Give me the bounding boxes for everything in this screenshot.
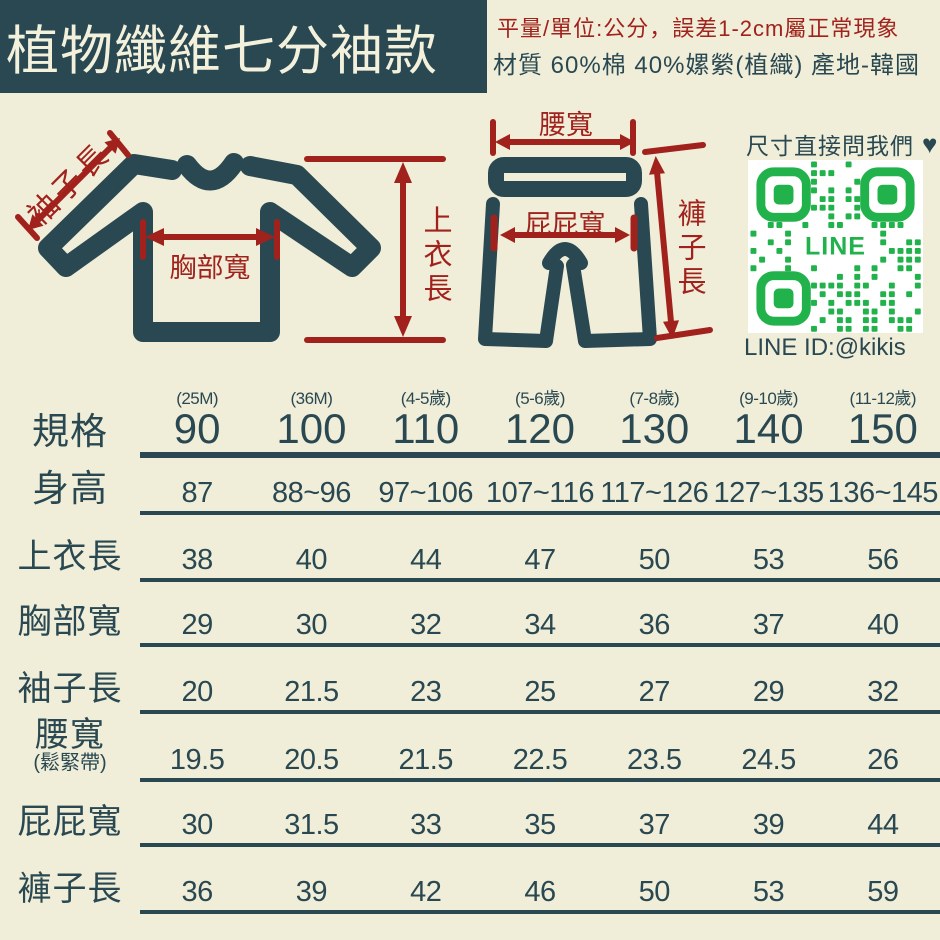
measurement-value: 53 [711, 878, 825, 907]
row-values: 2021.52325272932 [140, 647, 940, 714]
qr-finder-bottom-left [761, 276, 806, 321]
measurement-value: 32 [369, 611, 483, 640]
size-table-row: 屁屁寬3031.53335373944 [0, 782, 940, 847]
size-table: 規格 (25M)90(36M)100(4-5歲)110(5-6歲)120(7-8… [0, 388, 940, 914]
ask-us-label: 尺寸直接問我們 [746, 127, 914, 161]
measurement-value: 39 [254, 878, 368, 907]
row-label: 胸部寬 [18, 605, 123, 639]
size-column-header: (9-10歲)140 [711, 389, 825, 449]
measurement-value: 59 [826, 878, 940, 907]
line-id: LINE ID:@kikis [744, 334, 906, 362]
measurement-value: 23.5 [597, 746, 711, 775]
size-column-header: (4-5歲)110 [369, 389, 483, 449]
size-column-header: (36M)100 [254, 389, 368, 449]
row-label-cell: 胸部寬 [0, 582, 140, 647]
size-number: 140 [734, 409, 804, 449]
size-table-row: 袖子長2021.52325272932 [0, 647, 940, 714]
measurement-value: 47 [483, 546, 597, 575]
spec-label: 規格 [32, 413, 108, 450]
row-values: 19.520.521.522.523.524.526 [140, 714, 940, 782]
row-label: 腰寬 [35, 718, 105, 752]
qr-finder-top-right [865, 172, 910, 217]
row-values: 36394246505359 [140, 847, 940, 914]
row-label: 身高 [32, 470, 108, 507]
row-label-cell: 屁屁寬 [0, 782, 140, 847]
measurement-value: 97~106 [369, 479, 483, 508]
measurement-value: 53 [711, 546, 825, 575]
measurement-value: 32 [826, 678, 940, 707]
measurement-value: 46 [483, 878, 597, 907]
size-table-row: 腰寬(鬆緊帶)19.520.521.522.523.524.526 [0, 714, 940, 782]
measurement-value: 21.5 [369, 746, 483, 775]
measurement-value: 21.5 [254, 678, 368, 707]
row-label-cell: 褲子長 [0, 847, 140, 914]
row-values: 38404447505356 [140, 515, 940, 582]
measurement-value: 33 [369, 811, 483, 840]
measurement-value: 35 [483, 811, 597, 840]
size-number: 90 [174, 409, 221, 449]
row-sublabel: (鬆緊帶) [33, 752, 106, 774]
measurement-value: 31.5 [254, 811, 368, 840]
measurement-value: 36 [597, 611, 711, 640]
measurement-value: 26 [826, 746, 940, 775]
measurement-value: 50 [597, 546, 711, 575]
measurement-value: 44 [369, 546, 483, 575]
size-table-row: 上衣長38404447505356 [0, 515, 940, 582]
waist-width-label: 腰寬 [506, 103, 626, 142]
measurement-value: 27 [597, 678, 711, 707]
size-column-header: (5-6歲)120 [483, 389, 597, 449]
measurement-value: 36 [140, 878, 254, 907]
line-qr-code: LINE [748, 160, 923, 333]
measurement-value: 87 [140, 479, 254, 508]
spec-label-cell: 規格 [0, 388, 140, 458]
size-number: 130 [619, 409, 689, 449]
measurement-value: 107~116 [483, 479, 597, 508]
measurement-value: 40 [254, 546, 368, 575]
measurement-value: 42 [369, 878, 483, 907]
measurement-value: 25 [483, 678, 597, 707]
measurement-value: 117~126 [597, 479, 711, 508]
size-number: 110 [392, 409, 459, 449]
measurement-value: 34 [483, 611, 597, 640]
measurement-value: 88~96 [254, 479, 368, 508]
row-values: 8788~9697~106107~116117~126127~135136~14… [140, 458, 940, 515]
size-table-row: 褲子長36394246505359 [0, 847, 940, 914]
row-label-cell: 袖子長 [0, 647, 140, 714]
measurement-value: 20.5 [254, 746, 368, 775]
row-label: 屁屁寬 [18, 805, 123, 839]
shirt-neck [187, 163, 234, 181]
size-chart-infographic: 植物纖維七分袖款 平量/單位:公分，誤差1-2cm屬正常現象 材質 60%棉 4… [0, 0, 940, 940]
heart-icon: ♥ [922, 129, 938, 160]
measurement-value: 40 [826, 611, 940, 640]
size-column-header: (11-12歲)150 [826, 389, 940, 449]
row-label: 褲子長 [18, 872, 123, 906]
size-table-row: 身高8788~9697~106107~116117~126127~135136~… [0, 458, 940, 515]
page-title: 植物纖維七分袖款 [6, 9, 438, 85]
measurement-value: 136~145 [826, 479, 940, 508]
measurement-value: 30 [254, 611, 368, 640]
measurement-value: 29 [140, 611, 254, 640]
measurement-value: 56 [826, 546, 940, 575]
chest-width-label: 胸部寬 [150, 246, 270, 285]
measurement-value: 37 [597, 811, 711, 840]
pants-length-label: 褲子長 [668, 198, 710, 300]
measurement-value: 44 [826, 811, 940, 840]
row-label: 上衣長 [18, 540, 123, 574]
size-number: 150 [848, 409, 918, 449]
hip-width-label: 屁屁寬 [505, 203, 625, 242]
top-length-label: 上衣長 [414, 205, 456, 307]
measurement-value: 37 [711, 611, 825, 640]
size-number: 120 [505, 409, 575, 449]
size-number: 100 [276, 409, 346, 449]
measurement-value: 20 [140, 678, 254, 707]
qr-line-label: LINE [802, 231, 869, 262]
measurement-value: 39 [711, 811, 825, 840]
measurement-value: 19.5 [140, 746, 254, 775]
row-label: 袖子長 [18, 672, 123, 706]
row-values: 3031.53335373944 [140, 782, 940, 847]
title-banner: 植物纖維七分袖款 [0, 0, 487, 93]
contact-heading: 尺寸直接問我們 ♥ [746, 127, 938, 161]
pants-outline [485, 165, 650, 341]
row-label-cell: 身高 [0, 458, 140, 515]
size-table-header-row: 規格 (25M)90(36M)100(4-5歲)110(5-6歲)120(7-8… [0, 388, 940, 458]
measurement-value: 24.5 [711, 746, 825, 775]
row-label-cell: 上衣長 [0, 515, 140, 582]
measurement-value: 29 [711, 678, 825, 707]
measurement-value: 127~135 [711, 479, 825, 508]
measurement-value: 30 [140, 811, 254, 840]
row-values: 29303234363740 [140, 582, 940, 647]
size-column-header: (25M)90 [140, 389, 254, 449]
measurement-value: 50 [597, 878, 711, 907]
material-origin-note: 材質 60%棉 40%嫘縈(植織) 產地-韓國 [493, 45, 920, 80]
size-column-header: (7-8歲)130 [597, 389, 711, 449]
row-label-cell: 腰寬(鬆緊帶) [0, 714, 140, 782]
measurement-value: 23 [369, 678, 483, 707]
shirt-diagram [0, 100, 470, 380]
measurement-value: 22.5 [483, 746, 597, 775]
size-table-header-values: (25M)90(36M)100(4-5歲)110(5-6歲)120(7-8歲)1… [140, 388, 940, 458]
measurement-value: 38 [140, 546, 254, 575]
pants-crotch [549, 249, 581, 263]
measure-unit-note: 平量/單位:公分，誤差1-2cm屬正常現象 [497, 11, 899, 43]
size-table-row: 胸部寬29303234363740 [0, 582, 940, 647]
qr-finder-top-left [761, 172, 806, 217]
